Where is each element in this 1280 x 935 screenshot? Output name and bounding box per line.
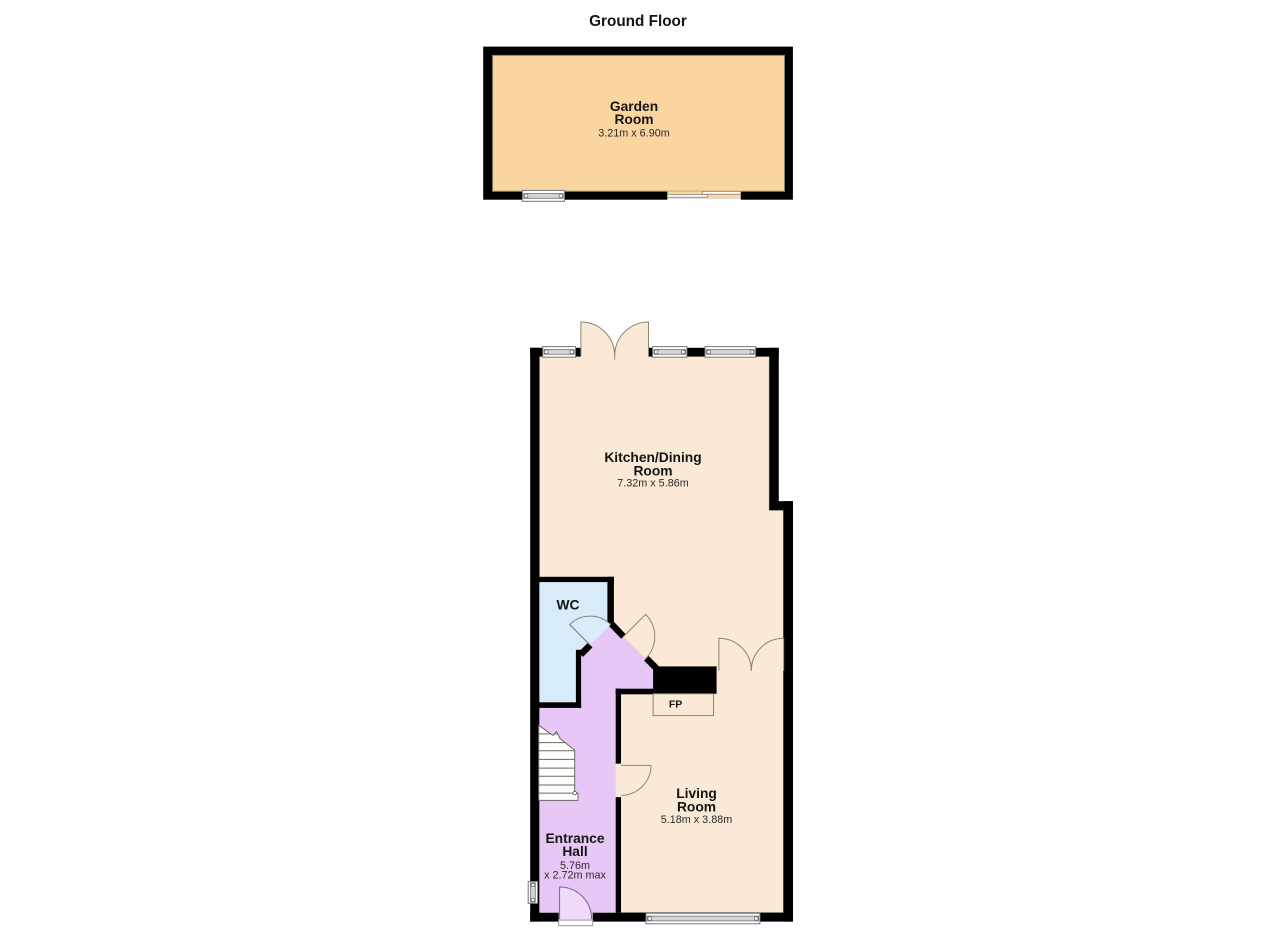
svg-text:7.32m x 5.86m: 7.32m x 5.86m	[617, 478, 688, 490]
svg-text:5.18m x 3.88m: 5.18m x 3.88m	[661, 814, 732, 826]
svg-text:FP: FP	[669, 698, 682, 710]
svg-text:3.21m x 6.90m: 3.21m x 6.90m	[598, 128, 669, 140]
svg-text:Ground Floor: Ground Floor	[589, 13, 687, 30]
svg-text:Room: Room	[677, 800, 716, 815]
svg-text:WC: WC	[557, 598, 580, 613]
svg-text:Room: Room	[633, 463, 672, 478]
svg-text:Hall: Hall	[562, 844, 587, 859]
svg-text:Room: Room	[614, 112, 653, 127]
svg-text:x 2.72m max: x 2.72m max	[544, 869, 606, 881]
